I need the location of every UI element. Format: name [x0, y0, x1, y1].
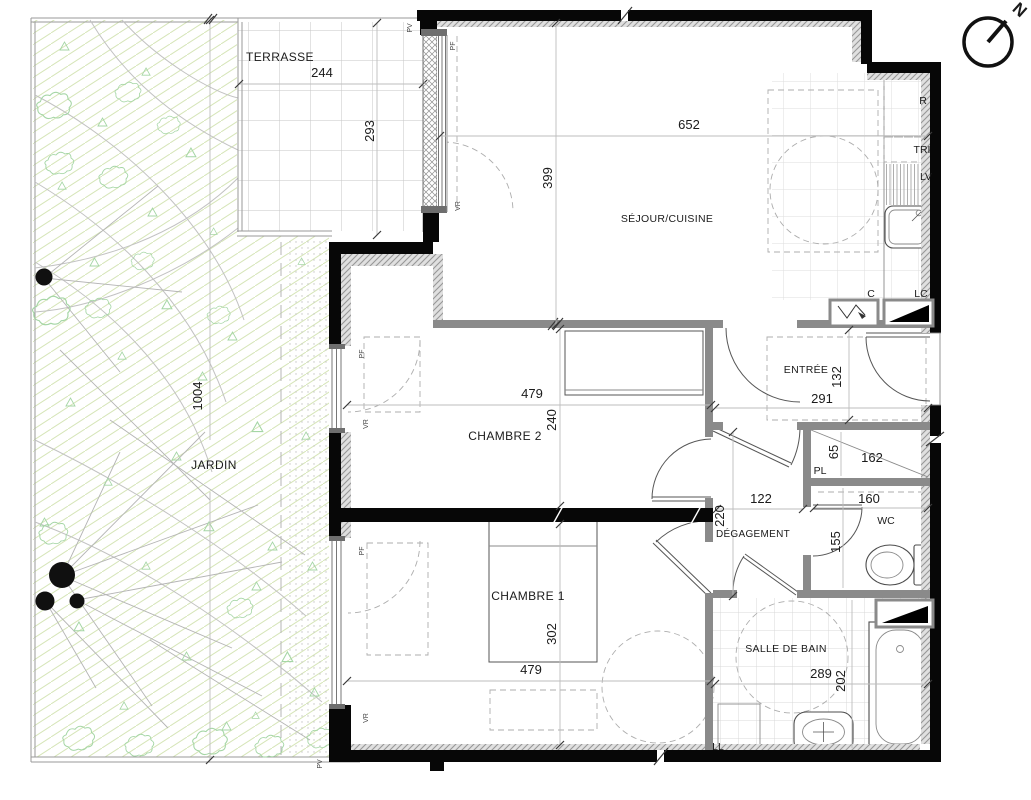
degagement-entree-door [791, 426, 800, 465]
wc-zone [866, 545, 929, 585]
bay-window-shutter [423, 35, 437, 207]
floor-plan: 1004 JARDIN TERRASSE 244 293 [0, 0, 1031, 800]
chambre2-window [329, 346, 345, 432]
chambre2-label: CHAMBRE 2 [468, 429, 542, 443]
sejour-label: SÉJOUR/CUISINE [621, 212, 713, 225]
laundry-column-label: LC [914, 288, 928, 300]
dim-wc-width: 160 [858, 491, 880, 506]
pv-top-label: PV [407, 23, 414, 33]
terrasse-area: TERRASSE 244 293 [235, 18, 427, 239]
dim-terrasse-depth: 293 [362, 120, 377, 142]
dim-placard-depth: 65 [826, 445, 841, 459]
dim-chambre2-depth: 240 [544, 409, 559, 431]
tree [36, 269, 53, 286]
water-heater-label: C [867, 288, 875, 300]
bay-door-swing [443, 142, 513, 212]
tri-label: TRI [914, 144, 931, 156]
dim-sejour-depth: 399 [540, 167, 555, 189]
dim-wc-depth: 155 [828, 531, 843, 553]
refrigerator-label: R [919, 95, 927, 107]
tree [36, 592, 55, 611]
dim-degagement-depth: 220 [712, 505, 727, 527]
bay-vr-label: VR [455, 201, 462, 211]
gravel-path [289, 240, 330, 755]
turning-circle [602, 631, 714, 743]
dim-terrasse-width: 244 [311, 65, 333, 80]
dim-entree-depth: 132 [829, 366, 844, 388]
compass: N [964, 0, 1031, 66]
bay-pf-label: PF [450, 42, 457, 51]
chambre1-vr-label: VR [363, 713, 370, 723]
north-label: N [1009, 0, 1031, 21]
dim-chambre2-width: 479 [521, 386, 543, 401]
dim-degagement-width: 122 [750, 491, 772, 506]
entrance-door [866, 337, 930, 401]
chambre2-pf-label: PF [359, 350, 366, 359]
dim-sdb-width: 289 [810, 666, 832, 681]
sdb-label: SALLE DE BAIN [745, 643, 827, 655]
sdb-door [733, 556, 744, 592]
dim-jardin-depth: 1004 [190, 382, 205, 411]
degagement-label: DÉGAGEMENT [716, 527, 790, 540]
closet-chambre2 [565, 331, 703, 395]
dim-sdb-depth: 202 [833, 670, 848, 692]
jardin-label: JARDIN [191, 458, 237, 472]
tree [70, 594, 85, 609]
wc-label: WC [877, 515, 895, 527]
chambre1-window [329, 538, 345, 708]
chambre1-label: CHAMBRE 1 [491, 589, 565, 603]
entree-label: ENTRÉE [784, 363, 828, 376]
dim-placard-width: 162 [861, 450, 883, 465]
tree [49, 562, 75, 588]
dim-entree-width: 291 [811, 391, 833, 406]
chambre2-vr-label: VR [363, 419, 370, 429]
toilet [866, 545, 914, 585]
terrasse-label: TERRASSE [246, 50, 314, 64]
placard-label: PL [814, 465, 827, 477]
dishwasher-label: LV [920, 171, 932, 183]
dim-chambre1-depth: 302 [544, 623, 559, 645]
washing-machine-label: LL [712, 741, 724, 753]
kitchen-zone [768, 73, 930, 300]
pv-bottom-label: PV [317, 759, 324, 769]
floor-plan-svg: 1004 JARDIN TERRASSE 244 293 [0, 0, 1031, 800]
chambre2-door [652, 439, 711, 499]
chambre1-pf-label: PF [359, 547, 366, 556]
dim-chambre1-width: 479 [520, 662, 542, 677]
water-heater-box [830, 300, 878, 326]
north-needle [988, 21, 1006, 42]
chambre1-door [656, 521, 711, 542]
dim-sejour-width: 652 [678, 117, 700, 132]
